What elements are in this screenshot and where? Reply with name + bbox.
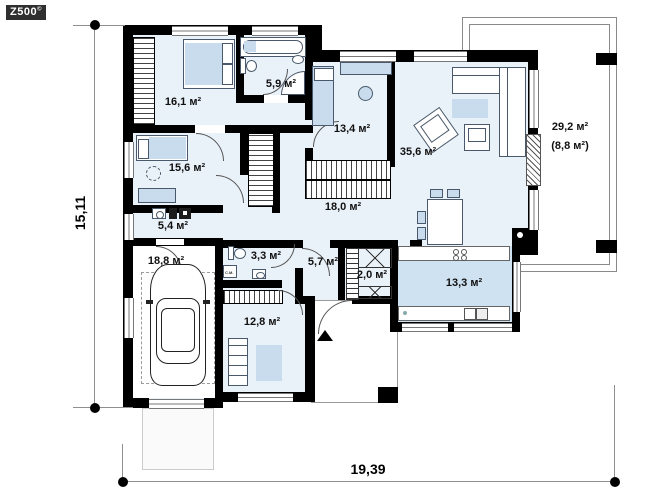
stove-icon	[452, 248, 478, 259]
sofa-icon	[499, 67, 526, 157]
room-label-garage: 18,8 м²	[148, 255, 184, 267]
wardrobe-hatch	[248, 133, 274, 207]
chair-icon	[417, 211, 426, 224]
room-label-living-room: 35,6 м²	[400, 146, 436, 158]
chair-icon	[464, 124, 490, 151]
chair-icon	[430, 189, 443, 198]
wall-wc-right-a	[295, 240, 303, 248]
wall-wc-bottom	[218, 280, 282, 288]
door-gap	[156, 239, 184, 245]
window	[252, 26, 298, 36]
door-gap	[195, 125, 225, 133]
window	[124, 298, 134, 338]
toilet-icon	[234, 248, 246, 259]
dimension-height: 15,11	[72, 196, 88, 230]
wardrobe-hatch	[223, 290, 283, 304]
window	[340, 51, 396, 62]
window	[454, 323, 512, 332]
room-label-wc: 3,3 м²	[251, 250, 281, 262]
door-gap	[264, 95, 288, 103]
room-label-hall: 5,7 м²	[308, 256, 338, 268]
wall-utility-right	[305, 296, 315, 396]
room-label-bathroom: 5,9 м²	[266, 78, 296, 90]
window	[124, 142, 134, 178]
toilet-icon	[246, 60, 257, 72]
folding-terrace-door	[526, 134, 541, 186]
wall-closet-top	[240, 125, 313, 133]
dining-table-icon	[427, 199, 463, 245]
kitchen-counter	[398, 306, 510, 321]
bathtub-icon	[240, 37, 306, 57]
dimension-dot	[610, 477, 620, 487]
sink-icon	[252, 269, 266, 279]
bed-icon	[183, 39, 235, 89]
kitchen-sink-icon	[464, 308, 488, 319]
boiler-icon	[169, 208, 177, 219]
room-label-kitchen: 13,3 м²	[446, 277, 482, 289]
chair-icon	[447, 189, 460, 198]
terrace-pillar	[596, 240, 617, 253]
washer-label: С.М.	[225, 270, 233, 275]
dimension-line-vertical	[94, 25, 95, 408]
storage-crate-icon	[358, 248, 392, 268]
dimension-dot	[118, 477, 128, 487]
window	[414, 51, 467, 62]
window	[529, 70, 539, 128]
dimension-dot	[90, 403, 100, 413]
rug	[256, 345, 282, 381]
washing-machine-icon: С.М.	[223, 265, 237, 278]
window	[238, 393, 293, 402]
wardrobe-hatch	[305, 180, 391, 199]
window	[513, 262, 521, 312]
logo-copyright: ©	[37, 6, 42, 12]
room-label-bedroom-1: 16,1 м²	[165, 96, 201, 108]
room-label-terrace-roofed: (8,8 м²)	[551, 140, 588, 152]
sink-icon	[292, 55, 304, 64]
room-label-terrace: 29,2 м²	[552, 121, 588, 133]
boiler-icon	[514, 229, 526, 242]
window	[529, 190, 539, 230]
floor-plan: Z500©	[0, 0, 655, 490]
wardrobe-hatch	[133, 37, 155, 125]
driveway	[142, 408, 214, 470]
room-label-laundry: 5,4 м²	[158, 220, 188, 232]
washing-machine-icon	[152, 208, 166, 219]
dimension-line-horizontal	[123, 481, 615, 482]
bed-icon	[136, 135, 188, 161]
desk-icon	[340, 62, 392, 75]
room-label-utility-room: 12,8 м²	[244, 316, 280, 328]
floor-drain-icon	[403, 311, 407, 315]
car-icon	[148, 264, 208, 386]
bed-icon	[312, 66, 334, 126]
terrace-pillar	[596, 53, 617, 65]
logo-text: Z500	[10, 6, 37, 18]
room-label-cabinet: 13,4 м²	[334, 123, 370, 135]
porch-corner-post	[378, 387, 398, 403]
chair-icon	[417, 227, 426, 240]
dimension-width: 19,39	[350, 461, 385, 477]
window	[172, 26, 228, 36]
wall-hall-pantry	[338, 246, 345, 300]
dimension-dot	[90, 20, 100, 30]
wall-bedroom2-right	[240, 133, 248, 175]
rug	[452, 99, 488, 118]
garage-door	[149, 399, 204, 409]
wall-bedroom1-bottom-a	[128, 125, 195, 133]
shelf-icon	[228, 338, 248, 386]
room-label-bedroom-2: 15,6 м²	[169, 162, 205, 174]
room-label-pantry: 2,0 м²	[357, 269, 387, 281]
wardrobe-hatch	[305, 160, 391, 180]
logo: Z500©	[6, 5, 46, 20]
room-label-corridor: 18,0 м²	[325, 201, 361, 213]
dimension-extension	[73, 407, 133, 408]
entrance-arrow-icon	[317, 330, 333, 341]
window	[402, 323, 448, 332]
wall-garage-right	[215, 240, 223, 402]
dimension-extension	[614, 385, 615, 482]
wall-bathroom-bottom-a	[236, 95, 264, 103]
window	[124, 214, 134, 240]
wall-cabinet-right	[387, 62, 395, 167]
storage-crate-icon	[358, 286, 392, 299]
heater-icon	[179, 208, 191, 219]
plant-icon	[146, 166, 161, 181]
office-chair-icon	[358, 86, 373, 101]
desk-icon	[138, 188, 176, 203]
